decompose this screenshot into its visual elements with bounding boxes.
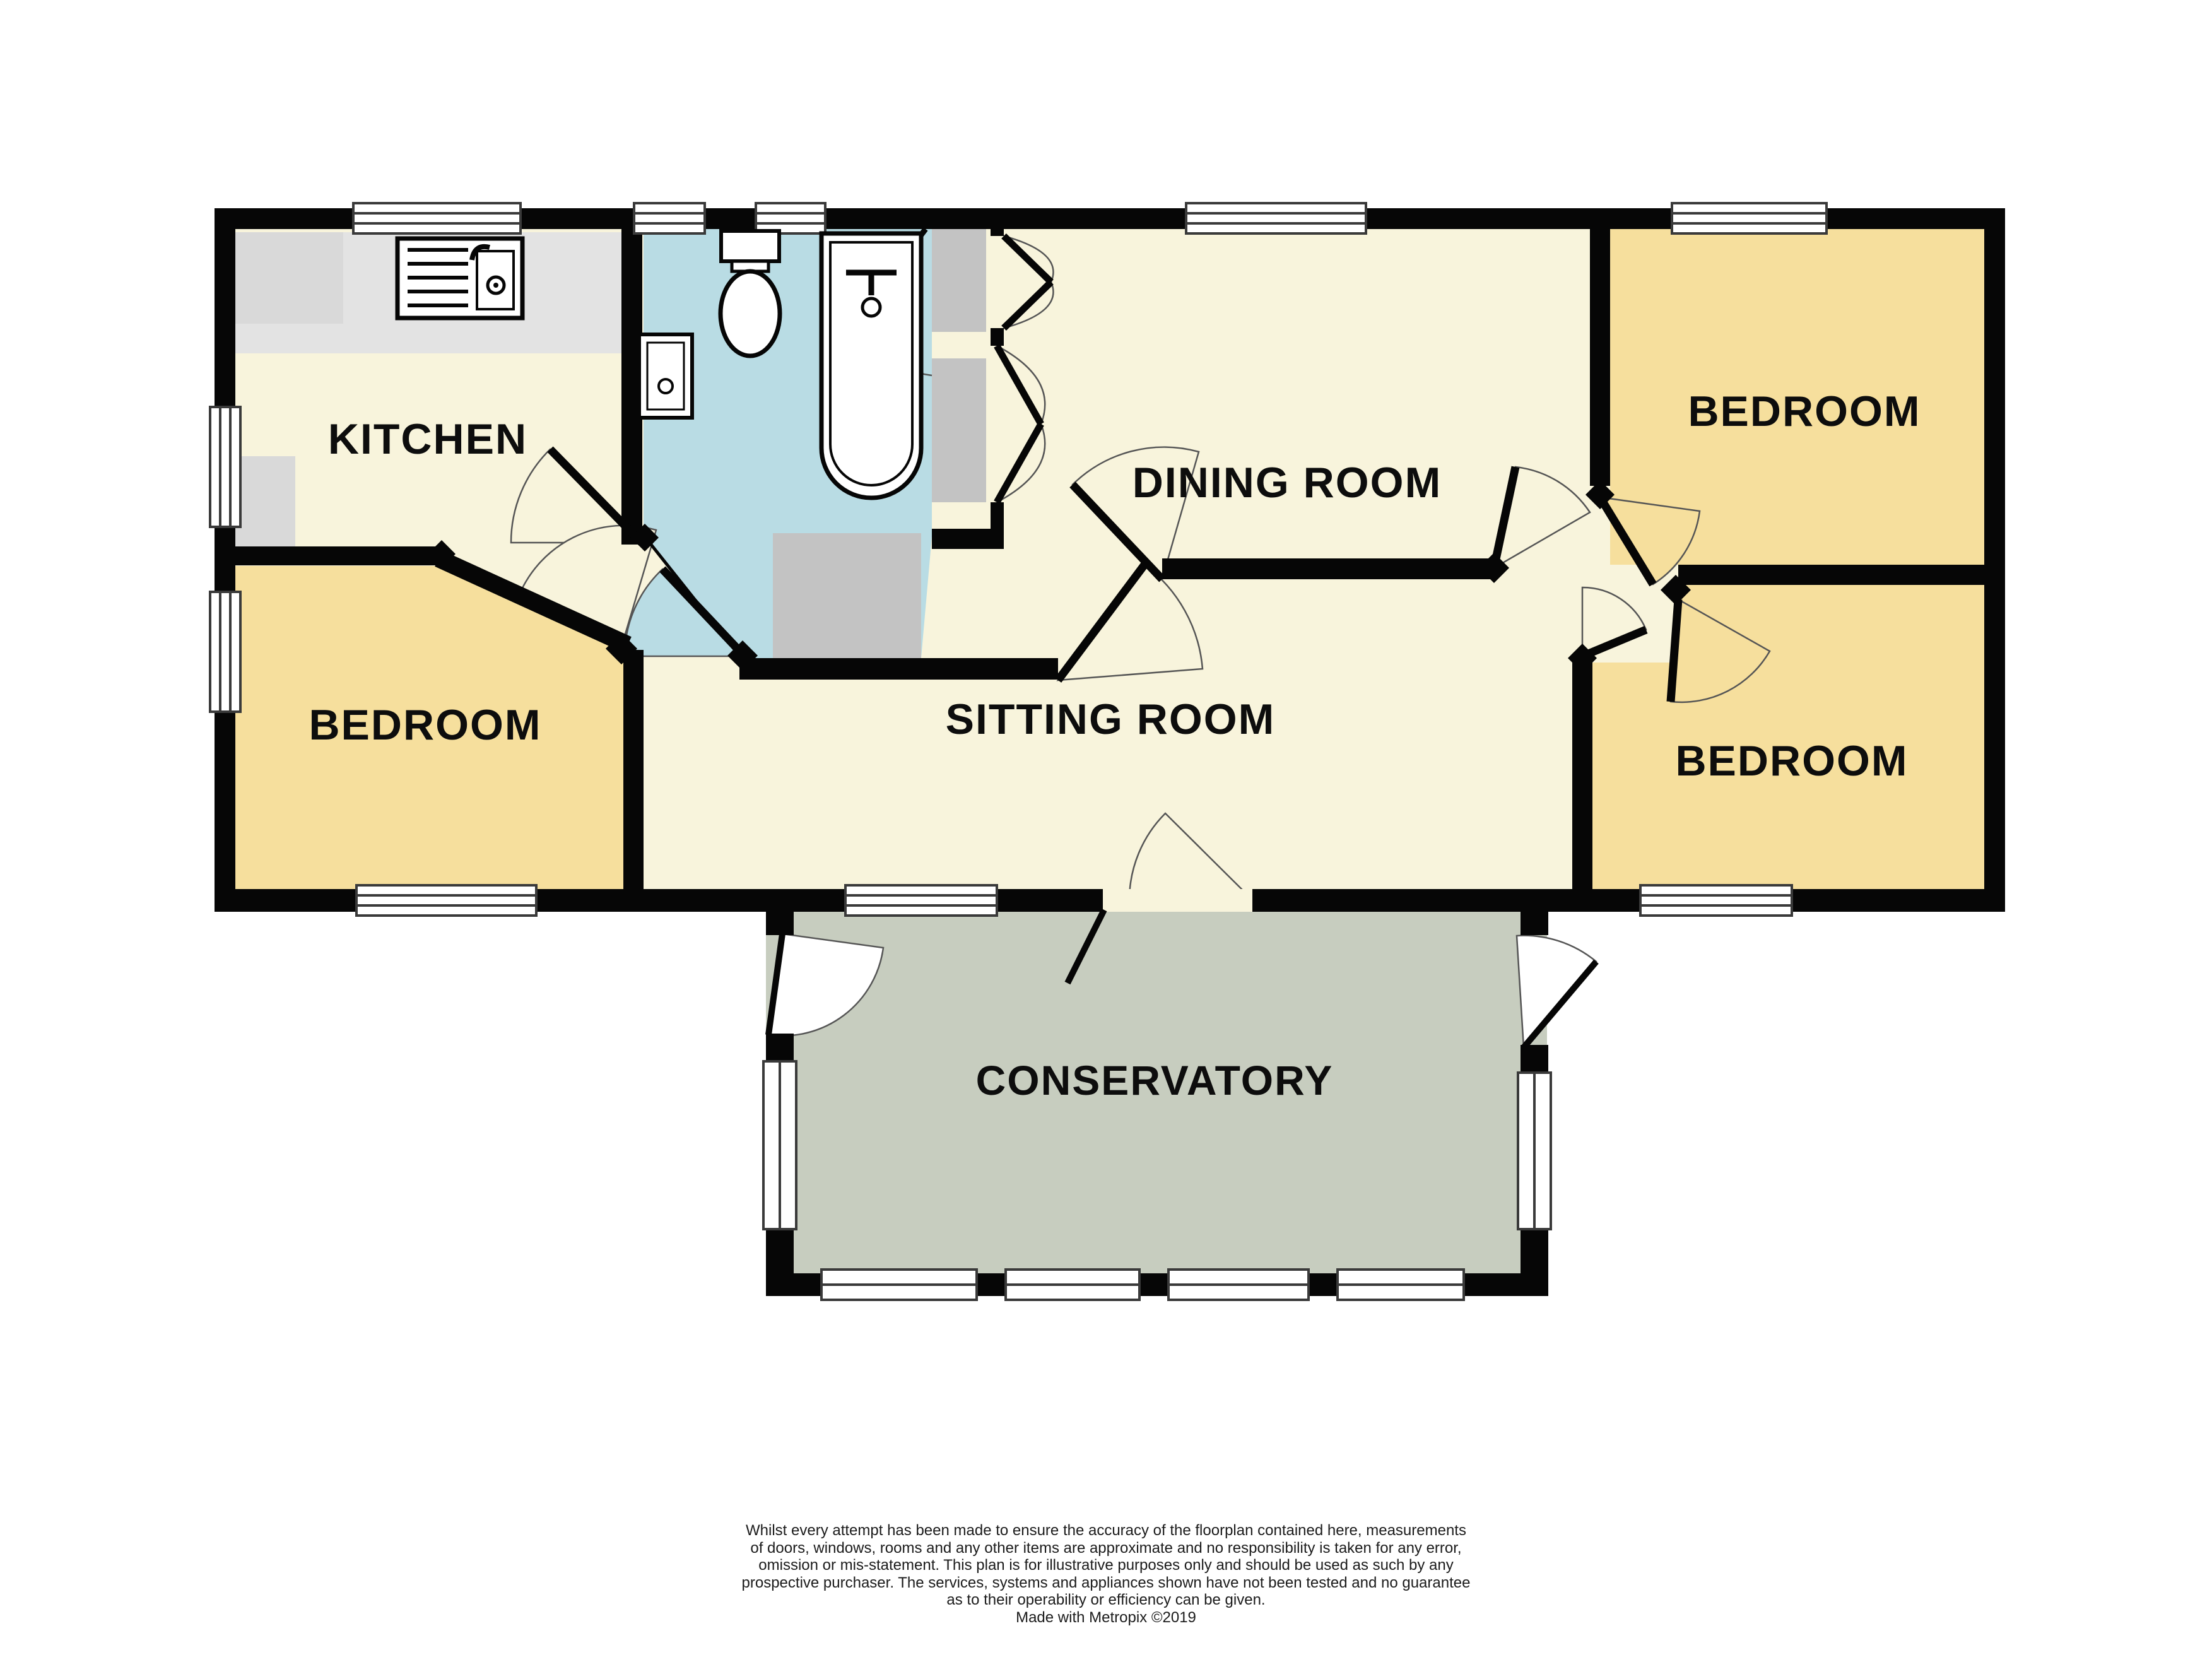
kitchen-counter-lower (235, 456, 295, 548)
window-left-bedroom (210, 592, 240, 712)
room-label-kitchen: KITCHEN (328, 415, 527, 464)
window-conservatory-right (1518, 1073, 1551, 1229)
room-label-dining-room: DINING ROOM (1132, 458, 1442, 507)
wall-vestibule-b (991, 328, 1004, 346)
wall-kitchen-bedroom (215, 546, 437, 565)
wall-between-right-bedrooms (1678, 565, 1984, 585)
window-top-bathroom-1 (634, 203, 705, 233)
window-conservatory-bottom-1 (821, 1270, 977, 1300)
wall-below-bathroom (739, 658, 1058, 680)
room-label-bedroom-left: BEDROOM (309, 700, 541, 750)
floor-plan (0, 0, 2212, 1662)
toilet-icon (721, 231, 780, 356)
window-bottom-bedroom-left (356, 885, 536, 916)
wall-below-cupboard (932, 529, 1004, 549)
window-top-bedroom (1672, 203, 1827, 233)
kitchen-sink-icon (397, 239, 522, 318)
window-conservatory-bottom-2 (1006, 1270, 1139, 1300)
window-top-kitchen (353, 203, 521, 233)
wall-sitting-bedroom (1572, 663, 1592, 889)
room-label-sitting-room: SITTING ROOM (946, 695, 1276, 744)
conservatory-right-door-arc (1517, 936, 1596, 1047)
window-conservatory-left (763, 1061, 796, 1229)
disclaimer-line: as to their operability or efficiency ca… (0, 1591, 2212, 1609)
window-top-dining (1186, 203, 1366, 233)
window-bottom-sitting (845, 885, 997, 916)
disclaimer: Whilst every attempt has been made to en… (0, 1522, 2212, 1626)
disclaimer-line: of doors, windows, rooms and any other i… (0, 1540, 2212, 1557)
wall-vestibule-a (991, 228, 1004, 236)
window-bottom-bedroom-right (1640, 885, 1792, 916)
conservatory-post-2 (766, 1034, 794, 1061)
disclaimer-line: prospective purchaser. The services, sys… (0, 1574, 2212, 1592)
wall-dining-bottom (1162, 558, 1494, 579)
disclaimer-line: Whilst every attempt has been made to en… (0, 1522, 2212, 1540)
wall-bedroom-left-side (623, 650, 644, 889)
conservatory-post-1 (766, 910, 794, 935)
cupboard-under-bath (773, 533, 921, 658)
wash-basin-icon (631, 334, 692, 418)
room-label-bedroom-top-right: BEDROOM (1688, 387, 1921, 436)
window-top-bathroom-2 (756, 203, 825, 233)
floorplan-page: KITCHEN DINING ROOM BEDROOM BEDROOM SITT… (0, 0, 2212, 1662)
window-conservatory-bottom-4 (1338, 1270, 1464, 1300)
wall-dining-bedroom (1590, 208, 1610, 486)
window-left-kitchen (210, 407, 240, 527)
cupboard-middle (932, 358, 986, 502)
window-conservatory-bottom-3 (1168, 1270, 1309, 1300)
cupboard-top (932, 224, 986, 332)
conservatory-post-5 (1521, 1045, 1548, 1073)
wall-vestibule-c (991, 502, 1004, 530)
wall-right (1984, 208, 2005, 912)
metropix-credit: Made with Metropix ©2019 (0, 1609, 2212, 1627)
conservatory-entry-opening (1103, 889, 1252, 912)
room-label-conservatory: CONSERVATORY (976, 1056, 1334, 1104)
room-label-bedroom-bottom-right: BEDROOM (1675, 736, 1908, 786)
disclaimer-line: omission or mis-statement. This plan is … (0, 1557, 2212, 1574)
conservatory-post-4 (1521, 910, 1548, 935)
bathtub-icon (821, 233, 921, 498)
kitchen-counter-corner (235, 232, 343, 324)
